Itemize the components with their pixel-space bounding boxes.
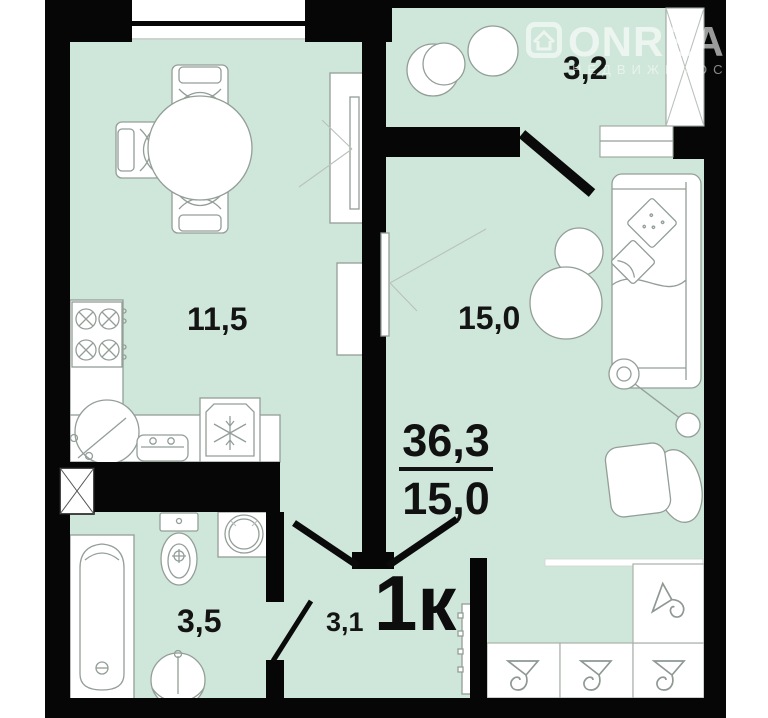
- kitchen-window: [132, 0, 305, 40]
- dining-table: [148, 96, 252, 200]
- total-area-value: 36,3: [399, 418, 493, 471]
- wall-segment: [45, 0, 70, 718]
- watermark-subtitle: НЕДВИЖИМОСТЬ: [572, 62, 757, 77]
- wall-segment: [390, 0, 706, 8]
- apartment-type-label: 1к: [374, 568, 456, 638]
- window-sill: [600, 126, 673, 157]
- room-area-label-kitchen: 11,5: [187, 303, 248, 335]
- stove: [72, 302, 126, 367]
- wall-segment: [362, 127, 520, 157]
- cabinet: [337, 263, 363, 355]
- bathtub: [70, 535, 134, 700]
- watermark-brand: ONREALT: [568, 18, 768, 66]
- room-area-label-bathroom: 3,5: [177, 605, 221, 637]
- wardrobe-cell: [633, 564, 704, 643]
- wall-segment: [704, 0, 726, 718]
- wall-segment: [305, 0, 392, 42]
- wall-segment: [45, 698, 726, 718]
- wall-segment: [673, 125, 704, 159]
- area-summary: 36,3 15,0: [394, 418, 498, 521]
- wall-segment: [45, 0, 132, 42]
- floor-plan: 11,5 15,0 3,2 3,5 3,1 36,3 15,0 1к ONREA…: [0, 0, 768, 718]
- wall-segment: [470, 558, 487, 698]
- balcony-table: [468, 26, 518, 76]
- wardrobe-cell: [487, 643, 560, 698]
- house-icon: [526, 22, 562, 58]
- wall-segment: [266, 512, 284, 602]
- room-area-label-living: 15,0: [458, 302, 520, 334]
- wardrobe-cell: [560, 643, 633, 698]
- cabinet-door: [381, 233, 389, 336]
- cabinet-door: [350, 97, 359, 209]
- vent-shaft: [60, 468, 94, 514]
- balcony-chair-cushion: [423, 43, 465, 85]
- fridge: [200, 398, 260, 462]
- dishwasher: [137, 435, 188, 461]
- living-area-value: 15,0: [394, 471, 498, 521]
- room-area-label-hallway: 3,1: [326, 609, 364, 636]
- bathroom-sink: [218, 512, 270, 557]
- toilet: [160, 513, 198, 585]
- wall-segment: [266, 660, 284, 698]
- coffee-table: [530, 267, 602, 339]
